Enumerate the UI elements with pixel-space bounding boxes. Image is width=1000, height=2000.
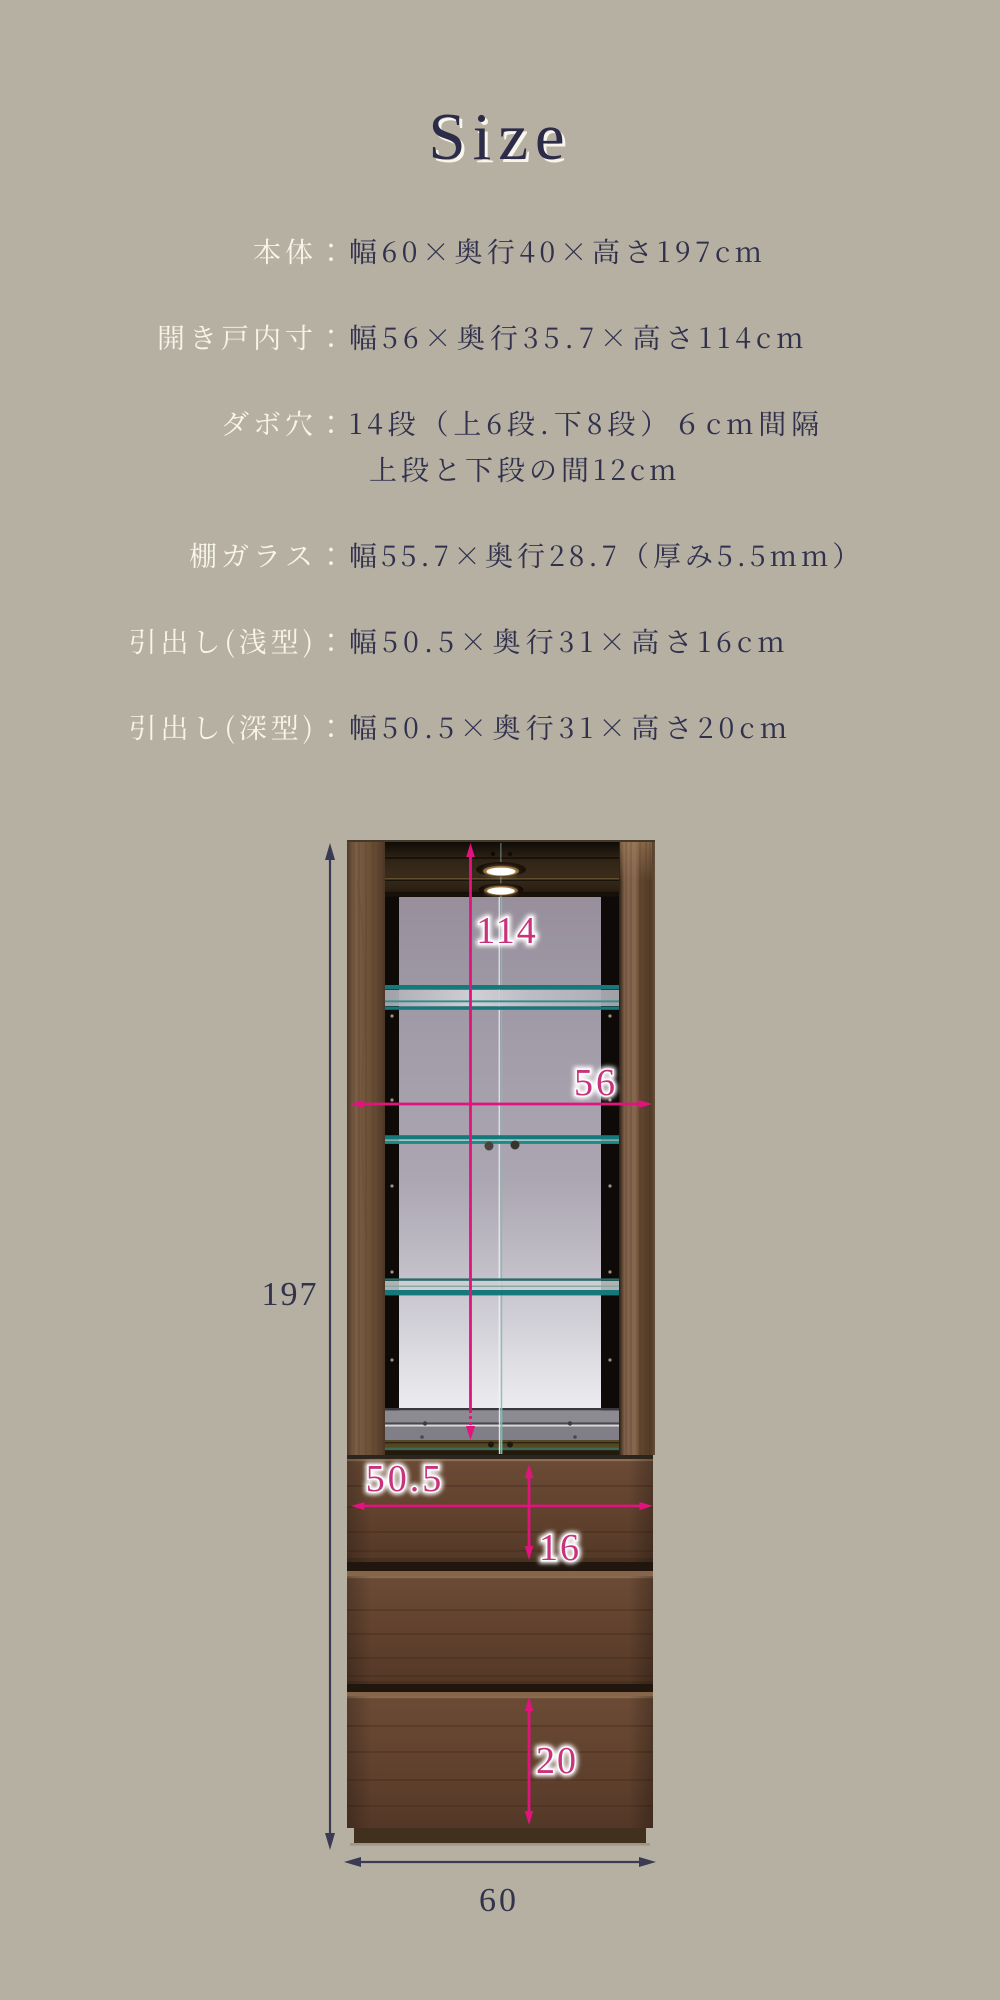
svg-text:56: 56	[574, 1062, 618, 1104]
svg-text:50.5: 50.5	[366, 1458, 445, 1500]
svg-text:197: 197	[262, 1276, 319, 1313]
svg-text:16: 16	[539, 1527, 581, 1569]
svg-text:114: 114	[476, 910, 538, 952]
svg-text:20: 20	[536, 1740, 578, 1782]
svg-text:60: 60	[479, 1882, 519, 1919]
